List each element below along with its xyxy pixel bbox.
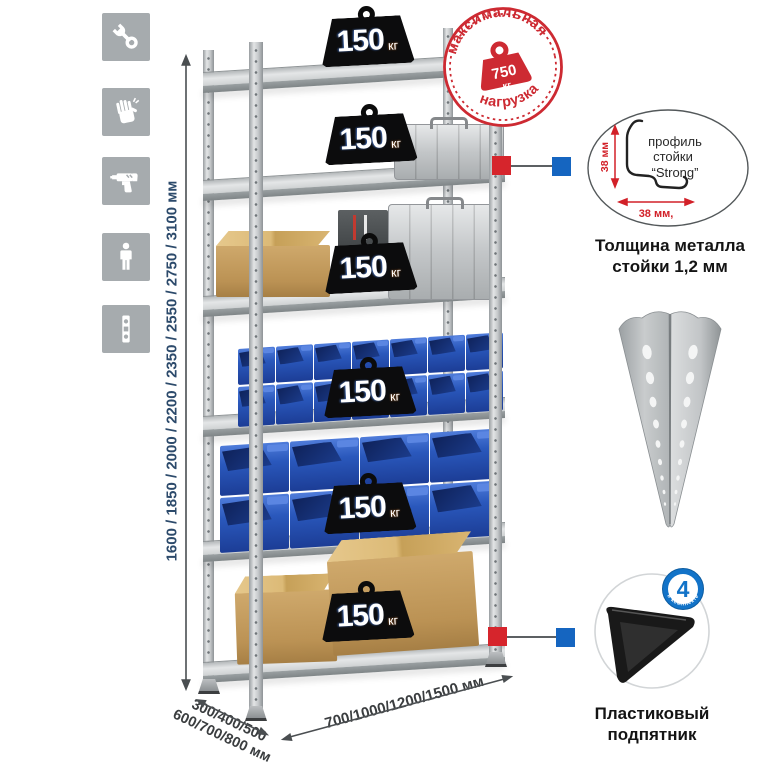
connector-line-bottom <box>498 636 562 638</box>
bin <box>276 344 313 382</box>
load-unit: кг <box>391 136 402 151</box>
max-load-stamp: максимальная нагрузка 750 кг <box>429 0 576 141</box>
bin <box>428 335 465 373</box>
load-badge-shelf-2: 150кг <box>323 102 418 166</box>
cardboard-box-small <box>216 245 330 297</box>
load-value: 150 <box>336 598 385 634</box>
load-value: 150 <box>339 121 388 157</box>
load-unit: кг <box>391 265 402 280</box>
bin <box>276 382 313 424</box>
load-unit: кг <box>388 613 399 628</box>
rack-post-left-front <box>249 42 263 718</box>
load-unit: кг <box>390 505 401 520</box>
load-value: 150 <box>338 374 387 410</box>
load-unit: кг <box>390 389 401 404</box>
load-value: 150 <box>338 490 387 526</box>
callout-marker-red-bottom <box>488 627 507 646</box>
callout-marker-blue-top <box>552 157 571 176</box>
load-unit: кг <box>388 38 399 53</box>
callout-marker-blue-bottom <box>556 628 575 647</box>
load-value: 150 <box>336 23 385 59</box>
rack-post-left-back <box>203 50 214 690</box>
load-badge-shelf-3: 150кг <box>323 231 418 295</box>
callout-marker-red-top <box>492 156 511 175</box>
box-top-face <box>216 231 330 246</box>
product-infographic: 1600 / 1850 / 2000 / 2200 / 2350 / 2550 … <box>0 0 765 765</box>
load-badge-shelf-4: 150кг <box>322 355 417 419</box>
load-badge-shelf-1: 150кг <box>320 4 415 68</box>
load-badge-shelf-6: 150кг <box>320 579 415 643</box>
bin <box>428 373 465 415</box>
load-value: 150 <box>339 250 388 286</box>
load-badge-shelf-5: 150кг <box>322 471 417 535</box>
